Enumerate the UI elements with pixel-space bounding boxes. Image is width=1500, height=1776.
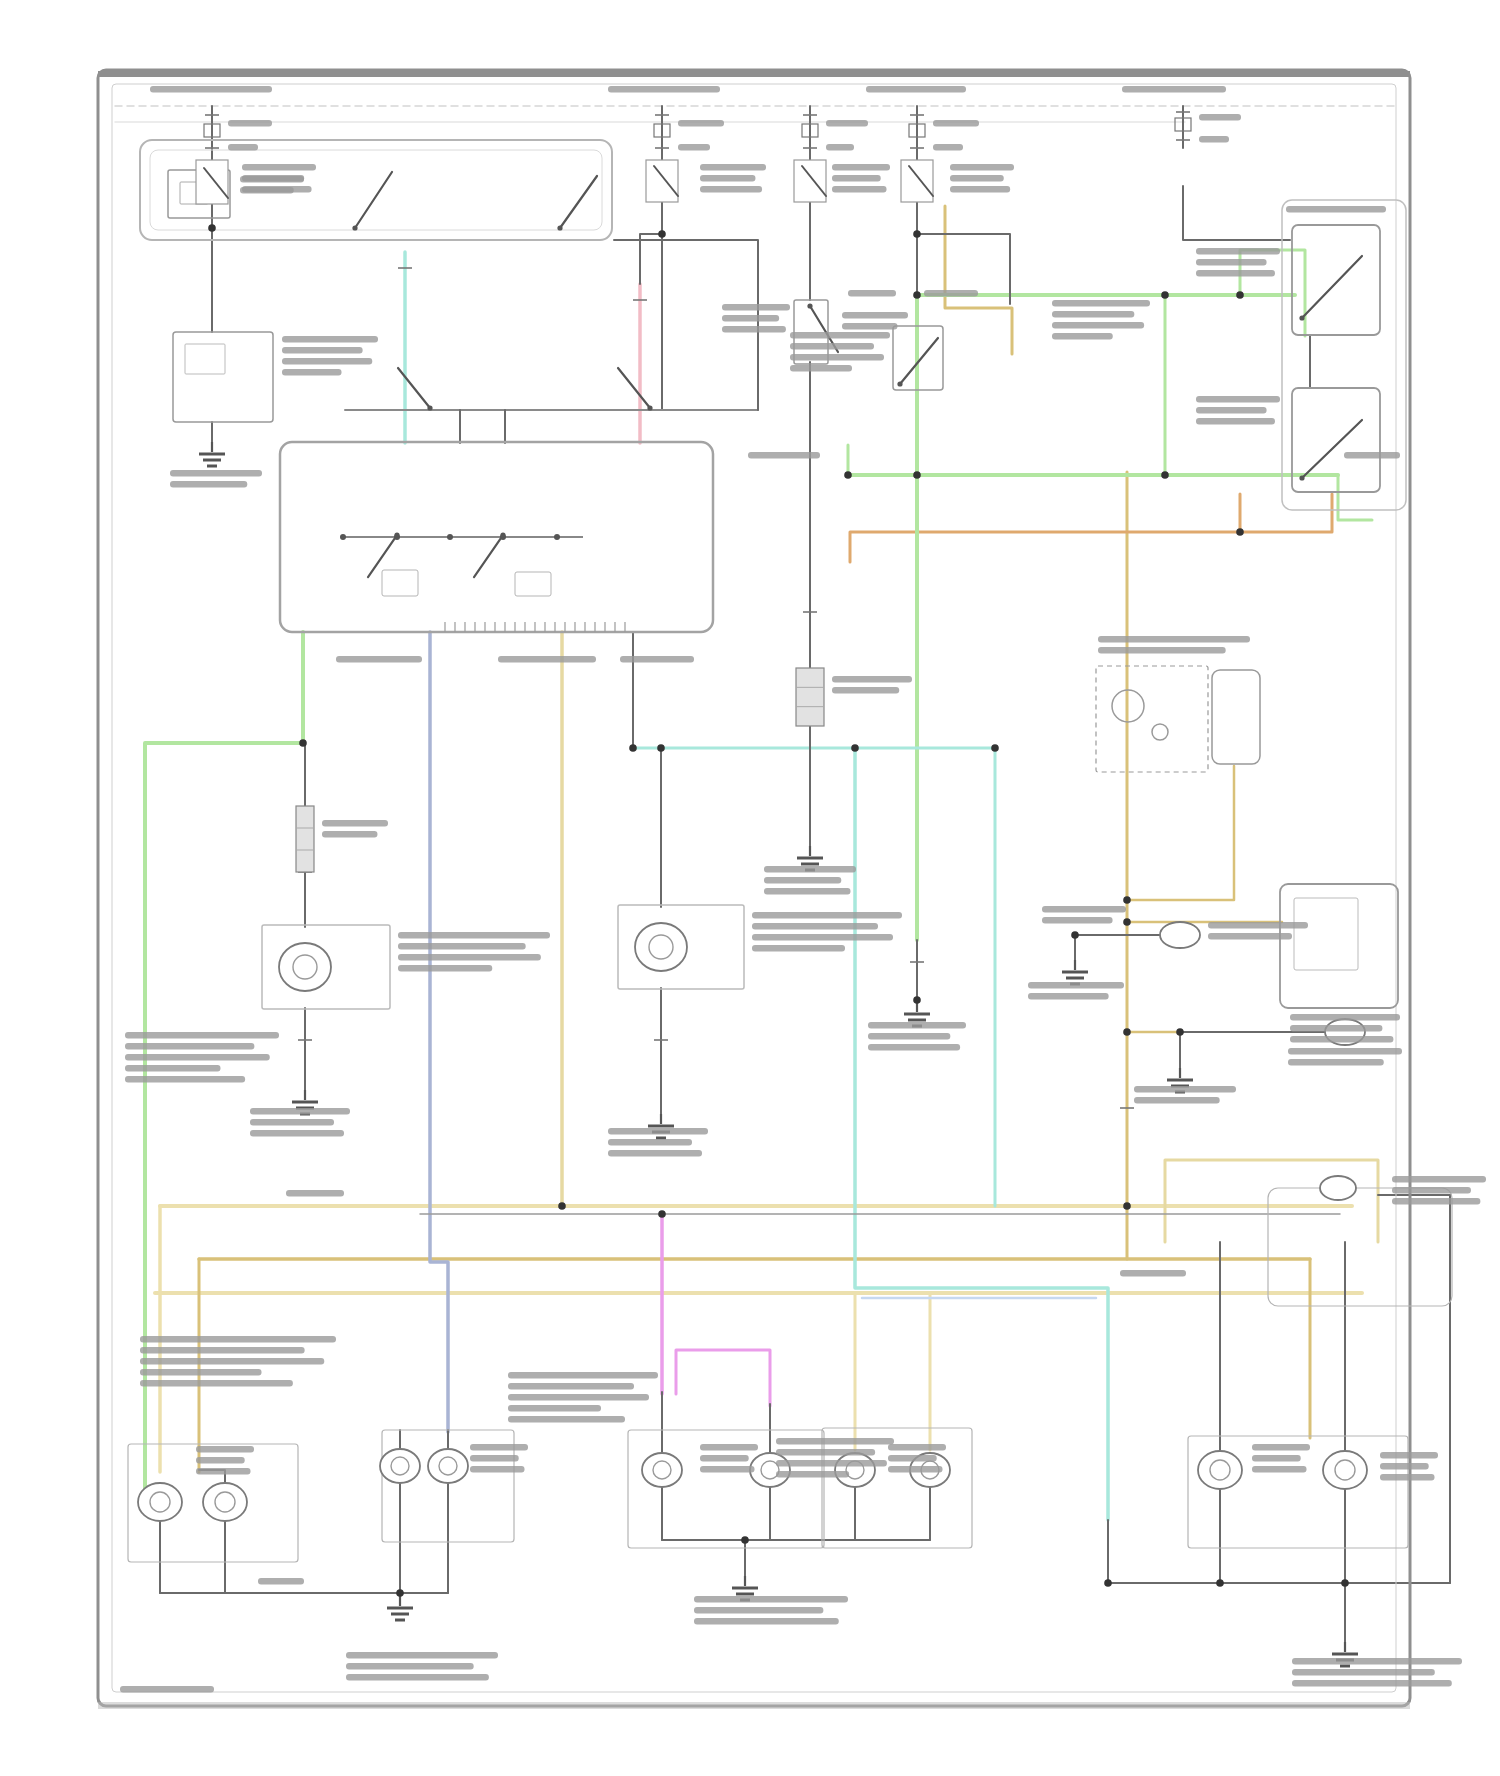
relay-1-arm-icon xyxy=(1299,256,1362,321)
label-module-left xyxy=(1042,906,1126,924)
label-fuse-c xyxy=(950,164,1014,193)
label-ground-mid xyxy=(764,866,856,895)
junction-dot xyxy=(658,1210,666,1218)
junction-dot xyxy=(991,744,999,752)
header-label-2 xyxy=(608,86,720,93)
label-col-c-tick xyxy=(933,144,963,151)
ground-left-column-icon xyxy=(199,442,225,466)
label-cluster-e2 xyxy=(1380,1452,1438,1481)
label-col-d-conn xyxy=(1199,114,1241,121)
label-left-loop xyxy=(125,1032,279,1083)
fuse-a-icon xyxy=(196,160,228,204)
cluster-e-lamp-1-icon xyxy=(1198,1451,1242,1489)
junction-dot xyxy=(658,230,666,238)
control-module-box xyxy=(1280,884,1398,1008)
label-mid-connector xyxy=(832,676,912,694)
label-col-c-conn xyxy=(933,120,979,127)
ground-right-mid-1-icon xyxy=(1062,960,1088,984)
label-ground-e xyxy=(1292,1658,1462,1687)
label-right-mid-lamp1 xyxy=(1208,922,1308,940)
label-cluster-b xyxy=(470,1444,528,1473)
label-relay-2 xyxy=(1196,396,1280,425)
junction-dot xyxy=(844,471,852,479)
cluster-d-lamp-1-icon xyxy=(835,1453,875,1487)
switch-contact-dot xyxy=(554,534,560,540)
wire-bluegray-long xyxy=(430,632,448,1432)
label-green-h2-l xyxy=(748,452,820,459)
junction-dot xyxy=(1161,291,1169,299)
junction-dot xyxy=(1236,528,1244,536)
label-inline-conn xyxy=(322,820,388,838)
label-ground-left-col xyxy=(170,470,262,488)
label-green-box xyxy=(790,332,890,372)
junction-dot xyxy=(396,1589,404,1597)
header-label-3 xyxy=(866,86,966,93)
label-tan-h xyxy=(286,1190,344,1197)
label-col-mid-tick xyxy=(826,144,854,151)
label-ground-cd xyxy=(694,1596,848,1625)
switch-arm-sw-2-icon xyxy=(474,532,506,577)
junction-dot xyxy=(913,230,921,238)
junction-dot xyxy=(657,744,665,752)
wire-magenta-bridge xyxy=(676,1350,770,1406)
label-fuse-b xyxy=(700,164,766,193)
khaki-box-lamp-icon xyxy=(1320,1176,1356,1200)
junction-dot xyxy=(741,1536,749,1544)
layer-components xyxy=(138,112,1367,1666)
wire-tan-branch-sensor xyxy=(1127,766,1234,900)
label-conn-right xyxy=(924,290,978,297)
label-khaki-box-lamp xyxy=(1392,1176,1486,1205)
inline-connector-mid xyxy=(796,668,824,726)
wire-khaki-feed-a xyxy=(945,206,1012,354)
switch-contact-dot xyxy=(340,534,346,540)
label-mid-switch-r xyxy=(842,312,908,330)
col-b-branch xyxy=(640,234,662,284)
cluster-a-lamp-1-icon xyxy=(138,1483,182,1521)
junction-dot xyxy=(913,291,921,299)
label-sensor-top xyxy=(1098,636,1250,654)
right-mid-lamp-1-icon xyxy=(1160,922,1200,948)
label-cluster-e1 xyxy=(1252,1444,1310,1473)
label-col-a-tick xyxy=(228,144,258,151)
label-mid-switch-l xyxy=(722,304,790,333)
junction-dot xyxy=(851,744,859,752)
label-cluster-a xyxy=(196,1446,254,1475)
junction-dot xyxy=(913,471,921,479)
header-label-4 xyxy=(1122,86,1226,93)
label-ground-ab xyxy=(346,1652,498,1681)
switch-arm-bus-1-icon xyxy=(398,368,433,411)
label-fuse-mid xyxy=(832,164,890,193)
inline-connector-left xyxy=(296,806,314,872)
fuse-b-icon xyxy=(646,160,678,202)
junction-dot xyxy=(913,996,921,1004)
switch-arm-tl-1-icon xyxy=(352,172,392,231)
junction-dot xyxy=(1123,1202,1131,1210)
diagram-svg xyxy=(0,0,1500,1776)
label-feed-a xyxy=(1052,300,1150,340)
ground-cluster-ab-icon xyxy=(387,1596,413,1620)
wire-khaki-box-loop xyxy=(1165,1160,1378,1242)
cluster-e-lamp-2-icon xyxy=(1323,1451,1367,1489)
wire-green-h2-right-elbow xyxy=(1338,475,1372,520)
switch-inner-detent-2 xyxy=(515,572,551,596)
junction-dot xyxy=(1123,896,1131,904)
junction-dot xyxy=(1176,1028,1184,1036)
sensor-dashed-box xyxy=(1096,666,1208,772)
junction-dot xyxy=(1104,1579,1112,1587)
junction-dot xyxy=(1123,918,1131,926)
sensor-side-box xyxy=(1212,670,1260,764)
wire-orange-run xyxy=(850,494,1332,562)
wire-cyan-big-route xyxy=(855,748,1108,1520)
switch-arm-tl-2-icon xyxy=(557,176,597,231)
label-center-lamp xyxy=(752,912,902,952)
label-conn-row-1 xyxy=(336,656,422,663)
label-left-lamp xyxy=(398,932,550,972)
label-col-d-tick xyxy=(1199,136,1229,143)
cluster-c-lamp-2-icon xyxy=(750,1453,790,1487)
label-green-h2-r xyxy=(1344,452,1400,459)
junction-dot xyxy=(1216,1579,1224,1587)
fuse-mid-icon xyxy=(794,160,826,202)
label-col-b-tick xyxy=(678,144,710,151)
col-d-v2 xyxy=(1183,186,1290,240)
label-col-mid-conn xyxy=(826,120,868,127)
cluster-b-lamp-2-icon xyxy=(428,1449,468,1483)
sun-sensor-circle-small xyxy=(1152,724,1168,740)
label-conn-row-3 xyxy=(620,656,694,663)
label-ab-junction xyxy=(258,1578,304,1585)
label-conn-row-2 xyxy=(498,656,596,663)
label-relay-top xyxy=(1286,206,1386,213)
label-ground-center-lamp xyxy=(608,1128,708,1157)
label-right-mid-gnd2 xyxy=(1134,1086,1236,1104)
layer-colored-wires xyxy=(145,206,1378,1520)
junction-dot xyxy=(299,739,307,747)
label-ground-v917 xyxy=(868,1022,966,1051)
label-ground-left-lamp xyxy=(250,1108,350,1137)
junction-dot xyxy=(629,744,637,752)
junction-dot xyxy=(1341,1579,1349,1587)
control-module-inner xyxy=(1294,898,1358,970)
left-park-lamp-icon xyxy=(279,943,331,991)
label-magenta-area xyxy=(776,1438,894,1478)
label-bottom-center-conn xyxy=(508,1372,658,1423)
label-bottom-left-conn xyxy=(140,1336,336,1387)
cluster-b-lamp-1-icon xyxy=(380,1449,420,1483)
label-right-mid-lamp2 xyxy=(1288,1048,1402,1066)
junction-dot xyxy=(1071,931,1079,939)
junction-dot xyxy=(1161,471,1169,479)
left-column-component xyxy=(173,332,273,422)
label-module-below xyxy=(1290,1014,1400,1043)
label-cluster-c xyxy=(700,1444,758,1473)
scanned-wiring-diagram-page xyxy=(0,0,1500,1776)
relay-2-arm-icon xyxy=(1299,420,1362,481)
header-label-1 xyxy=(150,86,272,93)
junction-dot xyxy=(208,224,216,232)
label-relay-1 xyxy=(1196,248,1280,277)
cluster-a-lamp-2-icon xyxy=(203,1483,247,1521)
switch-inner-detent-1 xyxy=(382,570,418,596)
junction-dot xyxy=(558,1202,566,1210)
fuse-c-icon xyxy=(901,160,933,202)
switch-arm-bus-2-icon xyxy=(618,368,653,411)
footer-mark xyxy=(120,1686,214,1693)
left-column-component-inner xyxy=(185,344,225,374)
junction-dot xyxy=(1236,291,1244,299)
label-right-mid-gnd1 xyxy=(1028,982,1124,1000)
switch-bottom-connector-row xyxy=(445,622,625,632)
junction-dot xyxy=(1123,1028,1131,1036)
center-park-lamp-icon xyxy=(635,923,687,971)
label-col-a-conn xyxy=(228,120,272,127)
label-left-component xyxy=(282,336,378,376)
label-col-b-conn xyxy=(678,120,724,127)
label-cyan-e xyxy=(1120,1270,1186,1277)
relay-outer-box xyxy=(1282,200,1406,510)
label-conn-left xyxy=(848,290,896,297)
bus-right-riser xyxy=(614,240,758,410)
page-bottom-shadow xyxy=(98,1702,1410,1709)
switch-contact-dot xyxy=(447,534,453,540)
cluster-c-lamp-1-icon xyxy=(642,1453,682,1487)
